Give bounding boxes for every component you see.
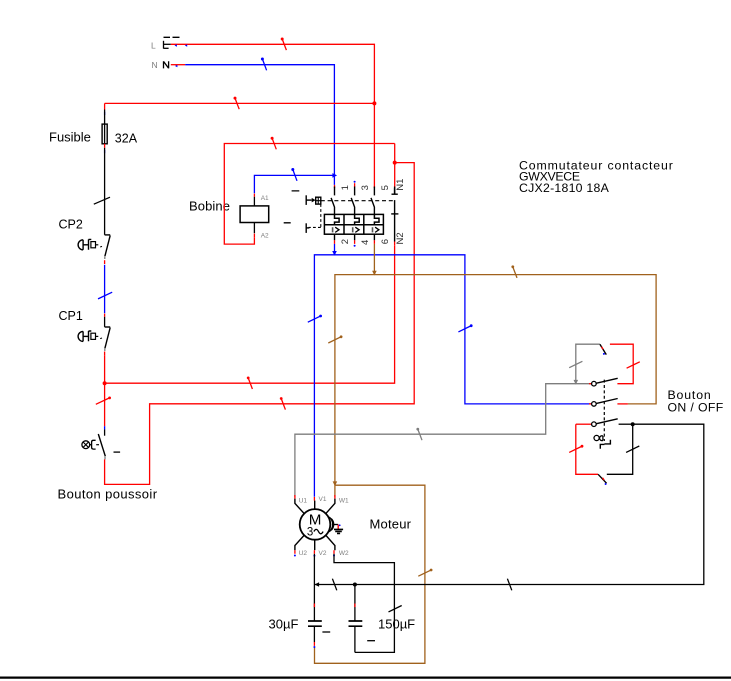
svg-text:U2: U2 — [299, 550, 308, 557]
svg-text:150µF: 150µF — [378, 617, 415, 632]
svg-text:CP2: CP2 — [59, 218, 83, 232]
svg-text:V2: V2 — [319, 550, 327, 557]
svg-text:6: 6 — [380, 239, 391, 244]
svg-text:30µF: 30µF — [269, 617, 299, 632]
svg-text:Fusible: Fusible — [49, 130, 91, 145]
svg-text:3: 3 — [307, 526, 313, 538]
svg-text:W1: W1 — [339, 498, 349, 505]
svg-text:4: 4 — [360, 240, 371, 245]
svg-text:N2: N2 — [395, 232, 406, 244]
svg-text:32A: 32A — [115, 132, 138, 146]
svg-text:ON / OFF: ON / OFF — [668, 401, 724, 415]
svg-text:L: L — [151, 40, 156, 50]
svg-text:N: N — [152, 60, 158, 70]
svg-text:2: 2 — [340, 239, 351, 244]
svg-text:1: 1 — [340, 185, 351, 190]
svg-text:U1: U1 — [299, 498, 308, 505]
svg-text:5: 5 — [380, 185, 391, 190]
svg-text:A2: A2 — [261, 232, 269, 239]
svg-text:V1: V1 — [319, 496, 327, 503]
svg-text:Moteur: Moteur — [370, 516, 412, 531]
svg-text:A1: A1 — [261, 195, 269, 202]
svg-text:CJX2-1810 18A: CJX2-1810 18A — [519, 181, 610, 195]
svg-text:Bouton poussoir: Bouton poussoir — [58, 487, 158, 502]
svg-text:CP1: CP1 — [59, 309, 83, 323]
svg-text:W2: W2 — [339, 550, 349, 557]
svg-text:3: 3 — [360, 185, 371, 190]
svg-text:N1: N1 — [395, 179, 406, 191]
